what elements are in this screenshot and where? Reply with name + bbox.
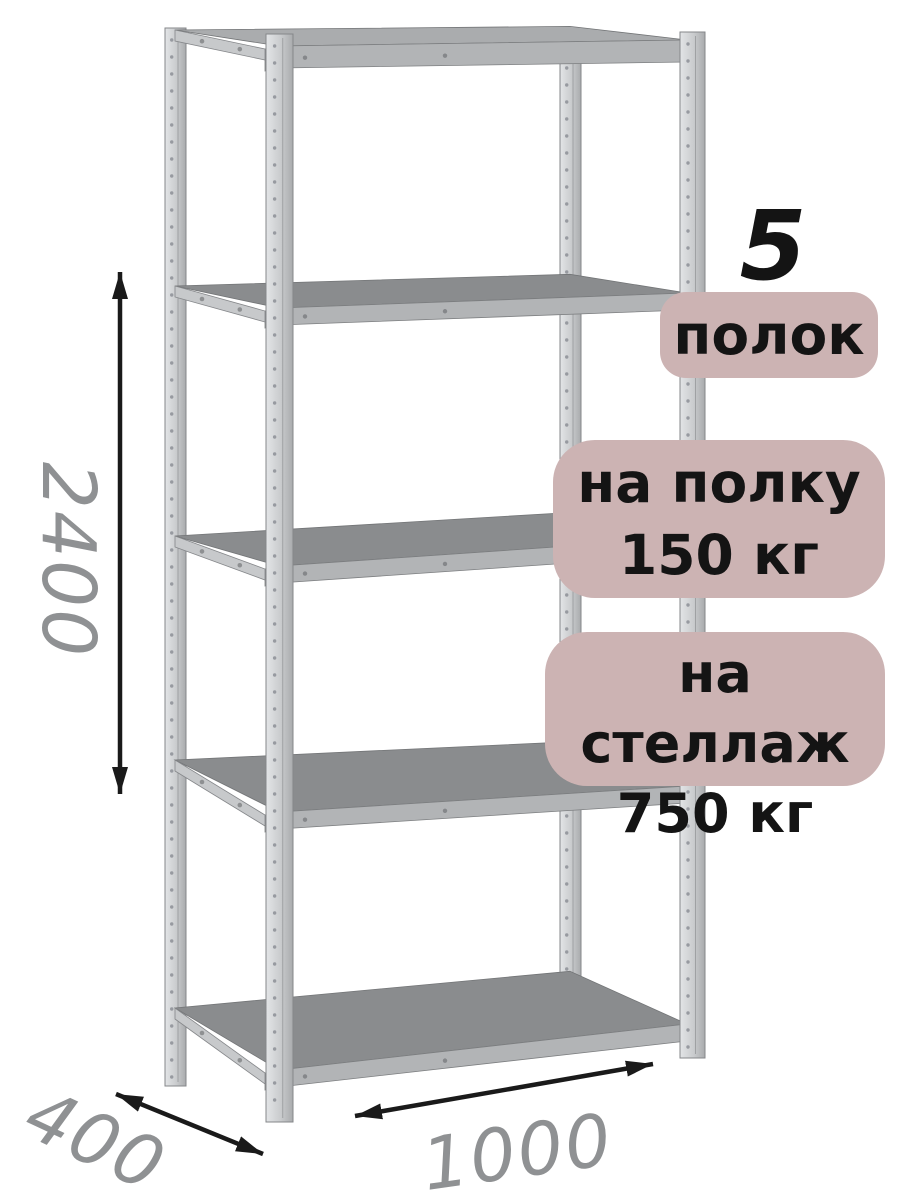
per-shelf-load-badge: на полку 150 кг — [553, 440, 885, 598]
per-shelf-load-line1: на полку — [553, 447, 885, 519]
rack-illustration — [0, 0, 900, 1200]
per-rack-load-badge: на стеллаж 750 кг — [545, 632, 885, 786]
rack-shelf — [175, 274, 687, 328]
rack-shelf — [175, 26, 687, 71]
per-shelf-load-line2: 150 кг — [553, 519, 885, 591]
height-dimension-label: 2400 — [28, 436, 108, 684]
shelf-count-badge: полок — [660, 292, 878, 378]
rack-post — [266, 34, 293, 1122]
rack-post — [165, 28, 186, 1086]
per-rack-load-line2: 750 кг — [545, 779, 885, 849]
product-image: 2400 400 1000 5 полок на полку 150 кг на… — [0, 0, 900, 1200]
shelf-count-number: 5 — [723, 196, 823, 296]
per-rack-load-line1: на стеллаж — [545, 639, 885, 779]
shelf-count-label: полок — [673, 303, 864, 367]
